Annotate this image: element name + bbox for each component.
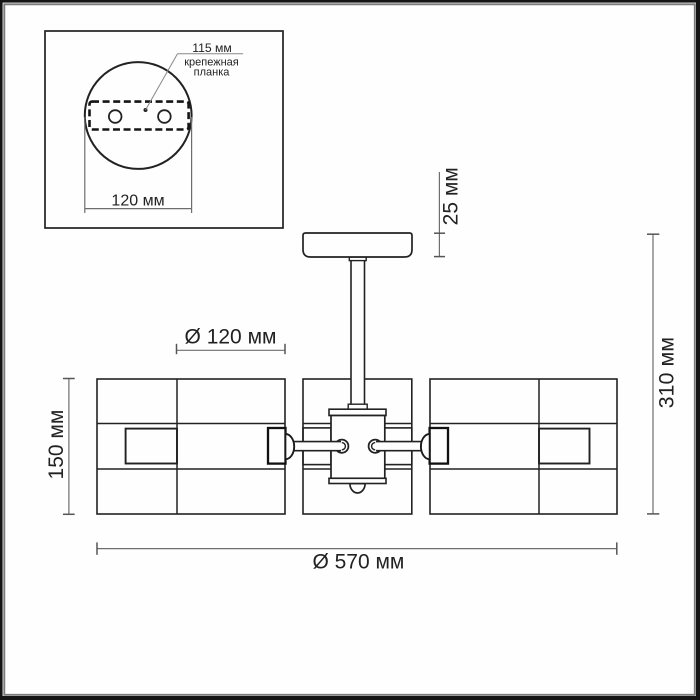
svg-text:Ø 120 мм: Ø 120 мм (185, 325, 277, 348)
svg-text:120 мм: 120 мм (111, 193, 164, 210)
svg-text:115 мм: 115 мм (192, 41, 232, 55)
svg-text:25 мм: 25 мм (440, 167, 463, 225)
svg-text:Ø 570 мм: Ø 570 мм (312, 551, 404, 574)
svg-text:планка: планка (194, 67, 231, 79)
svg-text:310 мм: 310 мм (654, 337, 678, 408)
svg-text:150 мм: 150 мм (45, 410, 68, 480)
